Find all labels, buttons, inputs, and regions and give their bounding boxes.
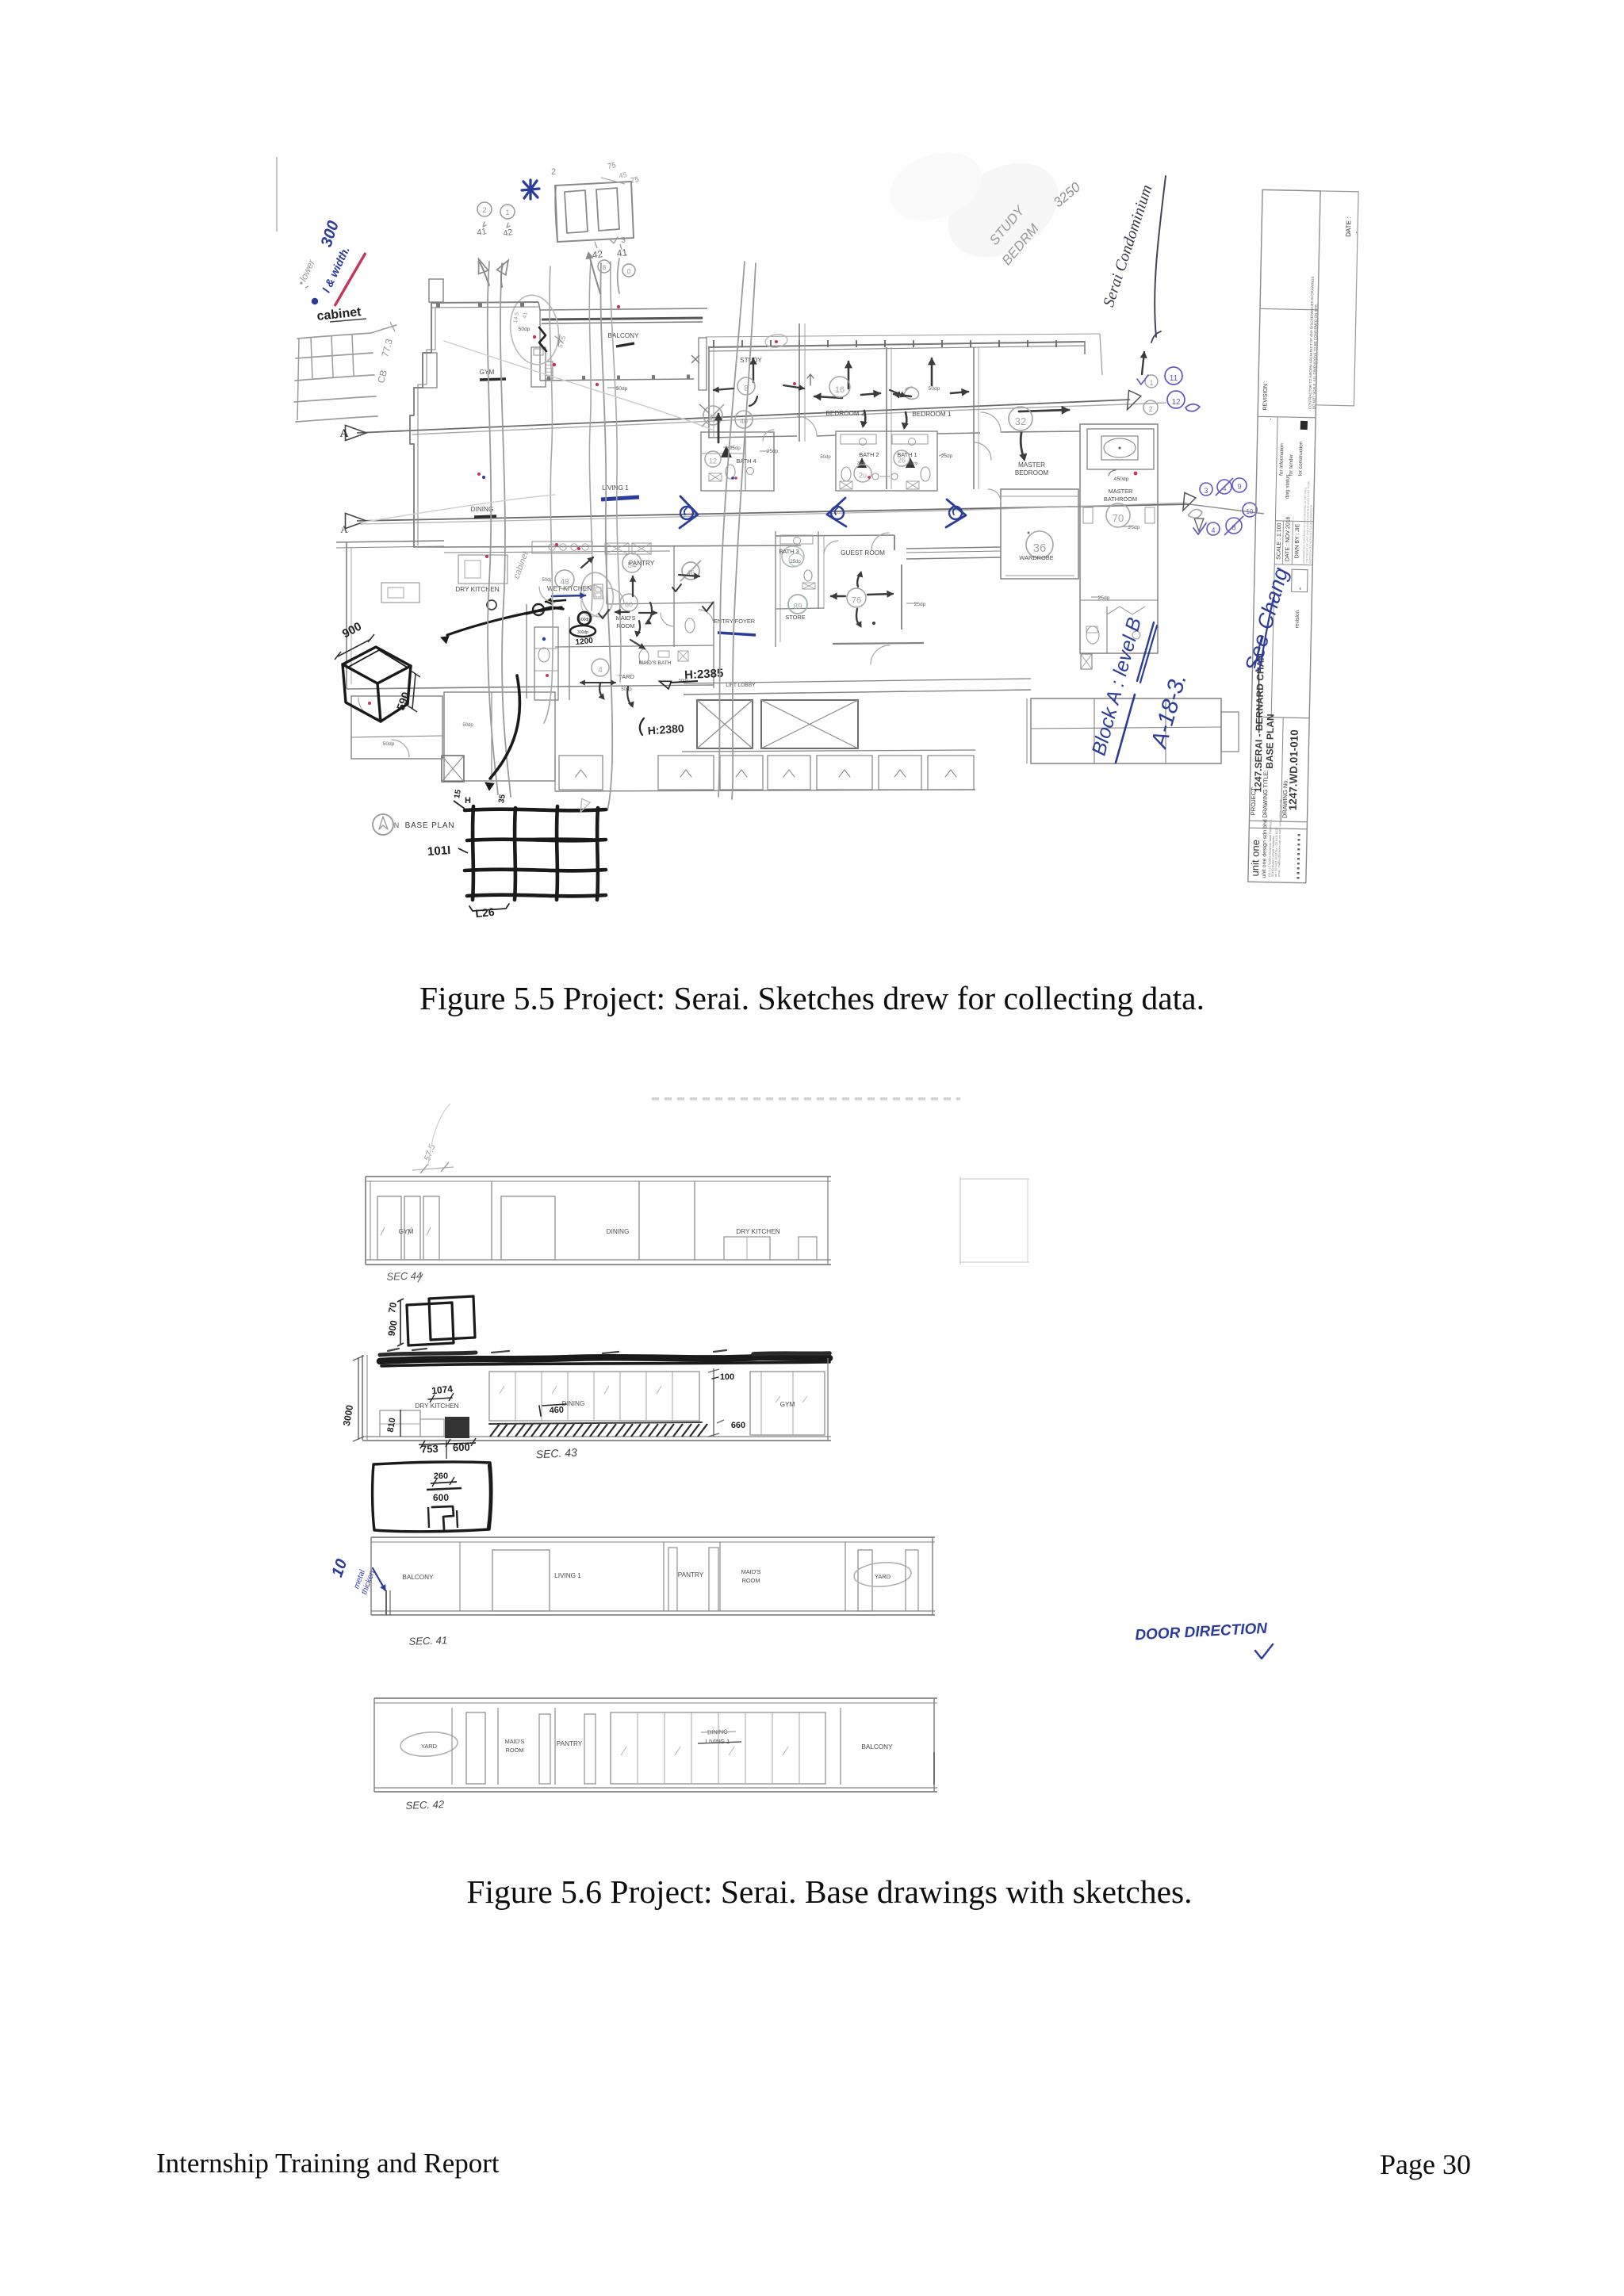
svg-text:25dp: 25dp (1128, 525, 1140, 530)
svg-text:12: 12 (1171, 398, 1181, 407)
svg-text:DRY KITCHEN: DRY KITCHEN (415, 1402, 458, 1410)
svg-text:810: 810 (386, 1417, 398, 1433)
svg-text:77.3: 77.3 (379, 338, 395, 358)
svg-text:LIFT LOBBY: LIFT LOBBY (726, 683, 756, 688)
svg-text:.: . (1350, 232, 1359, 234)
svg-text:BATH 4: BATH 4 (736, 457, 756, 465)
svg-text:DRAWING TITLE:: DRAWING TITLE: (1262, 770, 1270, 818)
svg-text:54: 54 (627, 561, 637, 570)
svg-text:LIVING 1: LIVING 1 (554, 1572, 581, 1579)
svg-text:H: H (465, 796, 471, 806)
svg-text:DRY KITCHEN: DRY KITCHEN (736, 1228, 779, 1235)
svg-text:70: 70 (1113, 512, 1124, 524)
svg-text:15: 15 (453, 789, 463, 799)
svg-text:32: 32 (1015, 415, 1026, 427)
svg-text:9: 9 (1237, 483, 1241, 491)
svg-text:WET KITCHEN: WET KITCHEN (547, 585, 592, 592)
svg-text:BEDROOM: BEDROOM (1015, 469, 1048, 476)
svg-text:1200: 1200 (575, 637, 594, 647)
svg-text:50dp: 50dp (616, 386, 628, 392)
svg-text:SEC 44: SEC 44 (386, 1269, 422, 1283)
svg-text:YARD: YARD (421, 1743, 437, 1750)
svg-text:1: 1 (1149, 379, 1153, 387)
svg-text:36: 36 (1033, 541, 1047, 555)
svg-text:40: 40 (740, 418, 748, 426)
svg-text:600dp: 600dp (579, 618, 590, 622)
svg-text:4: 4 (598, 666, 603, 675)
svg-text:A-18-3.: A-18-3. (1146, 671, 1192, 752)
svg-text:0: 0 (627, 268, 631, 275)
svg-text:H:2380: H:2380 (647, 721, 684, 737)
svg-text:10: 10 (1247, 508, 1254, 515)
svg-text:GUEST ROOM: GUEST ROOM (841, 549, 885, 557)
svg-text:BASE PLAN: BASE PLAN (405, 821, 455, 830)
svg-text:75: 75 (607, 161, 617, 171)
svg-text:CB: CB (375, 369, 389, 385)
svg-text:SEC. 43: SEC. 43 (535, 1446, 577, 1461)
svg-text:900: 900 (340, 620, 364, 641)
svg-text:41: 41 (522, 312, 528, 319)
svg-text:for tender: for tender (1289, 453, 1295, 476)
svg-text:900: 900 (385, 1319, 399, 1337)
svg-text:N: N (394, 821, 400, 829)
svg-text:WARDROBE: WARDROBE (1019, 554, 1053, 561)
svg-text:11: 11 (1170, 374, 1178, 383)
svg-text:H:2385: H:2385 (684, 667, 724, 683)
svg-text:600: 600 (433, 1492, 449, 1503)
svg-text:for construction: for construction (1298, 441, 1304, 476)
svg-text:48: 48 (560, 578, 569, 587)
svg-text:50dp: 50dp (542, 578, 553, 583)
svg-text:101I: 101I (427, 844, 451, 859)
svg-text:YARD: YARD (875, 1573, 891, 1580)
svg-text:GYM: GYM (480, 369, 495, 376)
svg-text:revision: revision (1295, 610, 1300, 628)
svg-text:35: 35 (497, 794, 507, 804)
svg-text:PANTRY: PANTRY (678, 1571, 704, 1578)
svg-text:450dp: 450dp (1114, 476, 1129, 482)
svg-text:45: 45 (618, 170, 627, 180)
svg-text:DRY KITCHEN: DRY KITCHEN (455, 586, 499, 593)
svg-text:76: 76 (852, 596, 861, 606)
svg-text:DATE : NOV 2016: DATE : NOV 2016 (1285, 516, 1291, 561)
svg-text:100: 100 (720, 1372, 734, 1382)
svg-text:unit one: unit one (1249, 840, 1262, 877)
svg-text:BEDROOM 2: BEDROOM 2 (825, 410, 865, 417)
svg-text:70: 70 (386, 1301, 399, 1314)
svg-text:A: A (340, 523, 348, 535)
svg-text:BEDROOM 1: BEDROOM 1 (912, 411, 952, 418)
svg-text:41: 41 (616, 247, 628, 259)
svg-text:50dp: 50dp (820, 455, 831, 460)
svg-text:660: 660 (731, 1421, 745, 1430)
svg-text:2: 2 (1148, 405, 1152, 413)
svg-text:42: 42 (592, 248, 603, 261)
svg-text:25dp: 25dp (1098, 595, 1110, 601)
svg-text:GYM: GYM (780, 1401, 795, 1408)
svg-text:BATH 3: BATH 3 (779, 548, 799, 555)
svg-text:16: 16 (835, 385, 845, 395)
svg-text:50dp: 50dp (462, 723, 473, 728)
svg-text:3000: 3000 (341, 1404, 355, 1427)
svg-text:DWN BY : JIE: DWN BY : JIE (1294, 523, 1300, 558)
svg-text:MASTER: MASTER (1018, 461, 1045, 469)
svg-text:2: 2 (551, 167, 556, 177)
svg-text:L26: L26 (475, 905, 496, 920)
svg-text:50dp: 50dp (519, 327, 530, 332)
svg-text:MASTER: MASTER (1109, 488, 1133, 495)
svg-text:25dp: 25dp (914, 602, 926, 607)
svg-text:DINING: DINING (607, 1228, 630, 1235)
svg-text:1247.WD.01-010: 1247.WD.01-010 (1287, 729, 1300, 810)
svg-text:89: 89 (793, 603, 802, 611)
svg-text:SEC. 41: SEC. 41 (408, 1634, 447, 1647)
svg-text:3: 3 (621, 236, 626, 245)
svg-text:email : mailbox@unitone.com.my: email : mailbox@unitone.com.my web : www… (1277, 799, 1282, 877)
svg-text:Block A : level B: Block A : level B (1088, 615, 1146, 758)
svg-text:See Chang: See Chang (1240, 564, 1293, 674)
svg-text:75: 75 (630, 175, 640, 186)
svg-text:60: 60 (625, 601, 633, 609)
svg-text:50dp: 50dp (383, 741, 395, 747)
svg-text:20dp: 20dp (909, 461, 917, 466)
svg-text:GYM: GYM (399, 1228, 414, 1235)
svg-text:MAID'S: MAID'S (616, 614, 636, 622)
svg-text:PANTRY: PANTRY (557, 1740, 583, 1747)
svg-text:-: - (1296, 587, 1305, 590)
svg-text:MAID'S: MAID'S (741, 1568, 761, 1575)
svg-text:STORE: STORE (785, 614, 805, 621)
svg-text:BATHROOM: BATHROOM (1104, 496, 1137, 503)
svg-text:460: 460 (549, 1406, 564, 1416)
svg-text:300dp: 300dp (577, 630, 588, 635)
svg-text:BALCONY: BALCONY (402, 1574, 434, 1581)
svg-text:300: 300 (318, 219, 343, 250)
svg-text:BATH 2: BATH 2 (859, 451, 879, 458)
svg-text:ROOM: ROOM (617, 622, 635, 629)
svg-text:SCALE : 1:100: SCALE : 1:100 (1276, 522, 1282, 560)
svg-text:2u: 2u (859, 472, 867, 480)
svg-text:ROOM: ROOM (742, 1577, 760, 1584)
svg-text:REVISION :: REVISION : (1262, 381, 1269, 411)
svg-text:for information: for information (1279, 443, 1285, 476)
svg-text:BASE PLAN: BASE PLAN (1264, 714, 1276, 769)
svg-text:BALCONY: BALCONY (861, 1743, 893, 1751)
svg-text:26: 26 (898, 456, 906, 464)
svg-text:Serai Condominium: Serai Condominium (1100, 182, 1156, 309)
svg-text:DOOR DIRECTION: DOOR DIRECTION (1135, 1621, 1269, 1644)
svg-text:lower: lower (297, 257, 317, 283)
svg-text:25dp: 25dp (790, 560, 801, 564)
svg-text:cabinet: cabinet (511, 549, 530, 580)
svg-text:DINING: DINING (471, 506, 494, 513)
svg-text:8: 8 (603, 264, 607, 271)
svg-text:2: 2 (482, 206, 486, 214)
svg-text:4: 4 (1211, 526, 1215, 534)
svg-text:8: 8 (744, 385, 749, 393)
svg-text:12: 12 (709, 457, 717, 465)
svg-text:dwg status: dwg status (1285, 474, 1291, 499)
svg-text:1: 1 (505, 209, 509, 216)
svg-text:50dp: 50dp (929, 386, 940, 392)
svg-text:.: . (1265, 418, 1273, 420)
svg-text:41: 41 (476, 227, 487, 238)
svg-text:SEC. 42: SEC. 42 (405, 1798, 445, 1812)
svg-text:1074: 1074 (431, 1383, 454, 1397)
svg-text:14.5: 14.5 (513, 312, 520, 323)
svg-text:A: A (340, 427, 349, 440)
svg-text:MAID'S: MAID'S (505, 1738, 525, 1745)
svg-text:42: 42 (502, 228, 513, 239)
svg-text:LIVING 1: LIVING 1 (706, 1738, 730, 1745)
svg-text:ROOM: ROOM (506, 1747, 524, 1754)
svg-text:10: 10 (328, 1557, 350, 1579)
svg-text:3: 3 (1204, 487, 1208, 495)
